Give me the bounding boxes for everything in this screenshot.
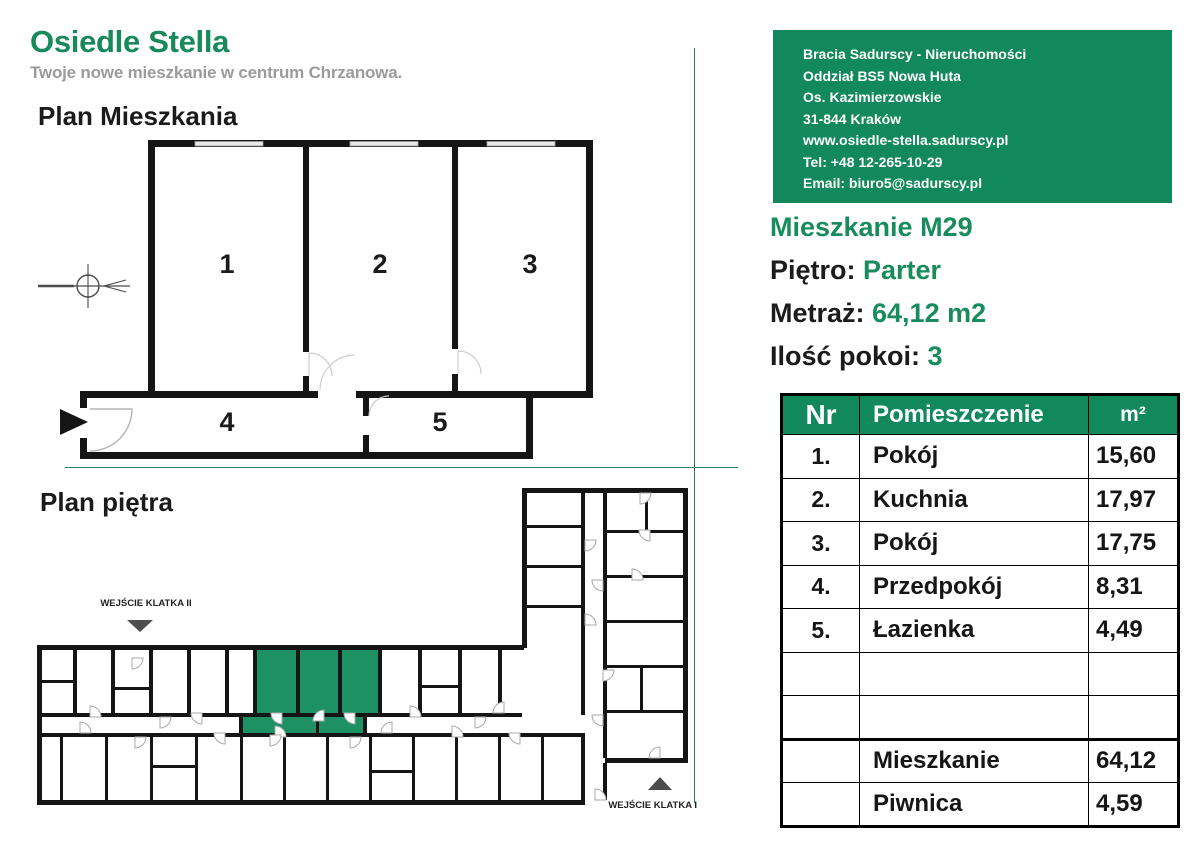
- table-row-total: Mieszkanie 64,12: [782, 739, 1179, 783]
- cell-area: 64,12: [1089, 739, 1179, 783]
- header-nr: Nr: [782, 395, 860, 435]
- cell-area: 17,75: [1089, 522, 1179, 566]
- table-row-basement: Piwnica 4,59: [782, 783, 1179, 827]
- apartment-name: Mieszkanie M29: [770, 206, 1180, 249]
- contact-line-city: 31-844 Kraków: [803, 109, 1152, 131]
- cell-nr: 2.: [782, 478, 860, 522]
- cell-nr: 3.: [782, 522, 860, 566]
- cell-name: Pokój: [860, 435, 1089, 479]
- cell-name: Łazienka: [860, 609, 1089, 653]
- cell-area: 8,31: [1089, 565, 1179, 609]
- entrance-2-arrow-icon: [127, 620, 153, 632]
- area-label: Metraż:: [770, 298, 872, 328]
- page-subtitle: Twoje nowe mieszkanie w centrum Chrzanow…: [30, 63, 402, 83]
- cell-area: [1089, 652, 1179, 696]
- compass-icon: [38, 264, 130, 308]
- room-number-labels: 1 2 3 4 5: [219, 249, 537, 437]
- room-label-2: 2: [372, 249, 387, 279]
- highlighted-apartment: [243, 650, 378, 733]
- entrance-2-label: WEJŚCIE KLATKA II: [100, 597, 191, 609]
- table-header-row: Nr Pomieszczenie m²: [782, 395, 1179, 435]
- cell-nr: 5.: [782, 609, 860, 653]
- rooms-table: Nr Pomieszczenie m² 1. Pokój 15,60 2. Ku…: [780, 393, 1180, 828]
- entrance-1-arrow-icon: [648, 777, 672, 790]
- entrance-arrow-icon: [60, 409, 88, 435]
- contact-line-branch: Oddział BS5 Nowa Huta: [803, 66, 1152, 88]
- rooms-value: 3: [928, 341, 943, 371]
- area-line: Metraż: 64,12 m2: [770, 292, 1180, 335]
- room-label-4: 4: [219, 407, 234, 437]
- cell-area: 17,97: [1089, 478, 1179, 522]
- floor-value: Parter: [863, 255, 941, 285]
- contact-line-company: Bracia Sadurscy - Nieruchomości: [803, 44, 1152, 66]
- cell-nr: 1.: [782, 435, 860, 479]
- apartment-plan-drawing: 1 2 3 4 5: [30, 120, 630, 480]
- page: Osiedle Stella Twoje nowe mieszkanie w c…: [0, 0, 1200, 848]
- room-label-5: 5: [432, 407, 447, 437]
- cell-name: Kuchnia: [860, 478, 1089, 522]
- apartment-details: Mieszkanie M29 Piętro: Parter Metraż: 64…: [770, 206, 1180, 378]
- floor-label: Piętro:: [770, 255, 863, 285]
- floor-plan-heading: Plan piętra: [40, 487, 173, 518]
- cell-nr: [782, 696, 860, 740]
- entrance-1-label: WEJŚCIE KLATKA I: [608, 799, 697, 811]
- cell-nr: 4.: [782, 565, 860, 609]
- cell-area: [1089, 696, 1179, 740]
- table-row-empty: [782, 652, 1179, 696]
- rooms-line: Ilość pokoi: 3: [770, 335, 1180, 378]
- cell-name: [860, 696, 1089, 740]
- contact-line-phone: Tel: +48 12-265-10-29: [803, 152, 1152, 174]
- table-row-empty: [782, 696, 1179, 740]
- cell-area: 4,59: [1089, 783, 1179, 827]
- cell-nr: [782, 652, 860, 696]
- contact-line-street: Os. Kazimierzowskie: [803, 87, 1152, 109]
- table-row: 4. Przedpokój 8,31: [782, 565, 1179, 609]
- cell-name: Pokój: [860, 522, 1089, 566]
- cell-name: Piwnica: [860, 783, 1089, 827]
- table-row: 1. Pokój 15,60: [782, 435, 1179, 479]
- contact-box: Bracia Sadurscy - Nieruchomości Oddział …: [773, 30, 1172, 203]
- cell-name: [860, 652, 1089, 696]
- cell-nr: [782, 783, 860, 827]
- area-value: 64,12 m2: [872, 298, 986, 328]
- contact-line-email: Email: biuro5@sadurscy.pl: [803, 173, 1152, 195]
- room-label-3: 3: [522, 249, 537, 279]
- cell-area: 15,60: [1089, 435, 1179, 479]
- building-walls: [37, 488, 688, 805]
- page-title: Osiedle Stella: [30, 24, 229, 60]
- cell-area: 4,49: [1089, 609, 1179, 653]
- contact-line-website: www.osiedle-stella.sadurscy.pl: [803, 130, 1152, 152]
- window-symbols: [195, 142, 555, 147]
- header-name: Pomieszczenie: [860, 395, 1089, 435]
- cell-nr: [782, 739, 860, 783]
- entrance-door-arc-icon: [90, 409, 132, 451]
- table-row: 3. Pokój 17,75: [782, 522, 1179, 566]
- table-row: 2. Kuchnia 17,97: [782, 478, 1179, 522]
- cell-name: Przedpokój: [860, 565, 1089, 609]
- rooms-label: Ilość pokoi:: [770, 341, 928, 371]
- apartment-walls: [80, 140, 593, 459]
- room-label-1: 1: [219, 249, 234, 279]
- cell-name: Mieszkanie: [860, 739, 1089, 783]
- table-row: 5. Łazienka 4,49: [782, 609, 1179, 653]
- header-area: m²: [1089, 395, 1179, 435]
- floor-plan-drawing: WEJŚCIE KLATKA II WEJŚCIE KLATKA I: [20, 480, 710, 820]
- floor-line: Piętro: Parter: [770, 249, 1180, 292]
